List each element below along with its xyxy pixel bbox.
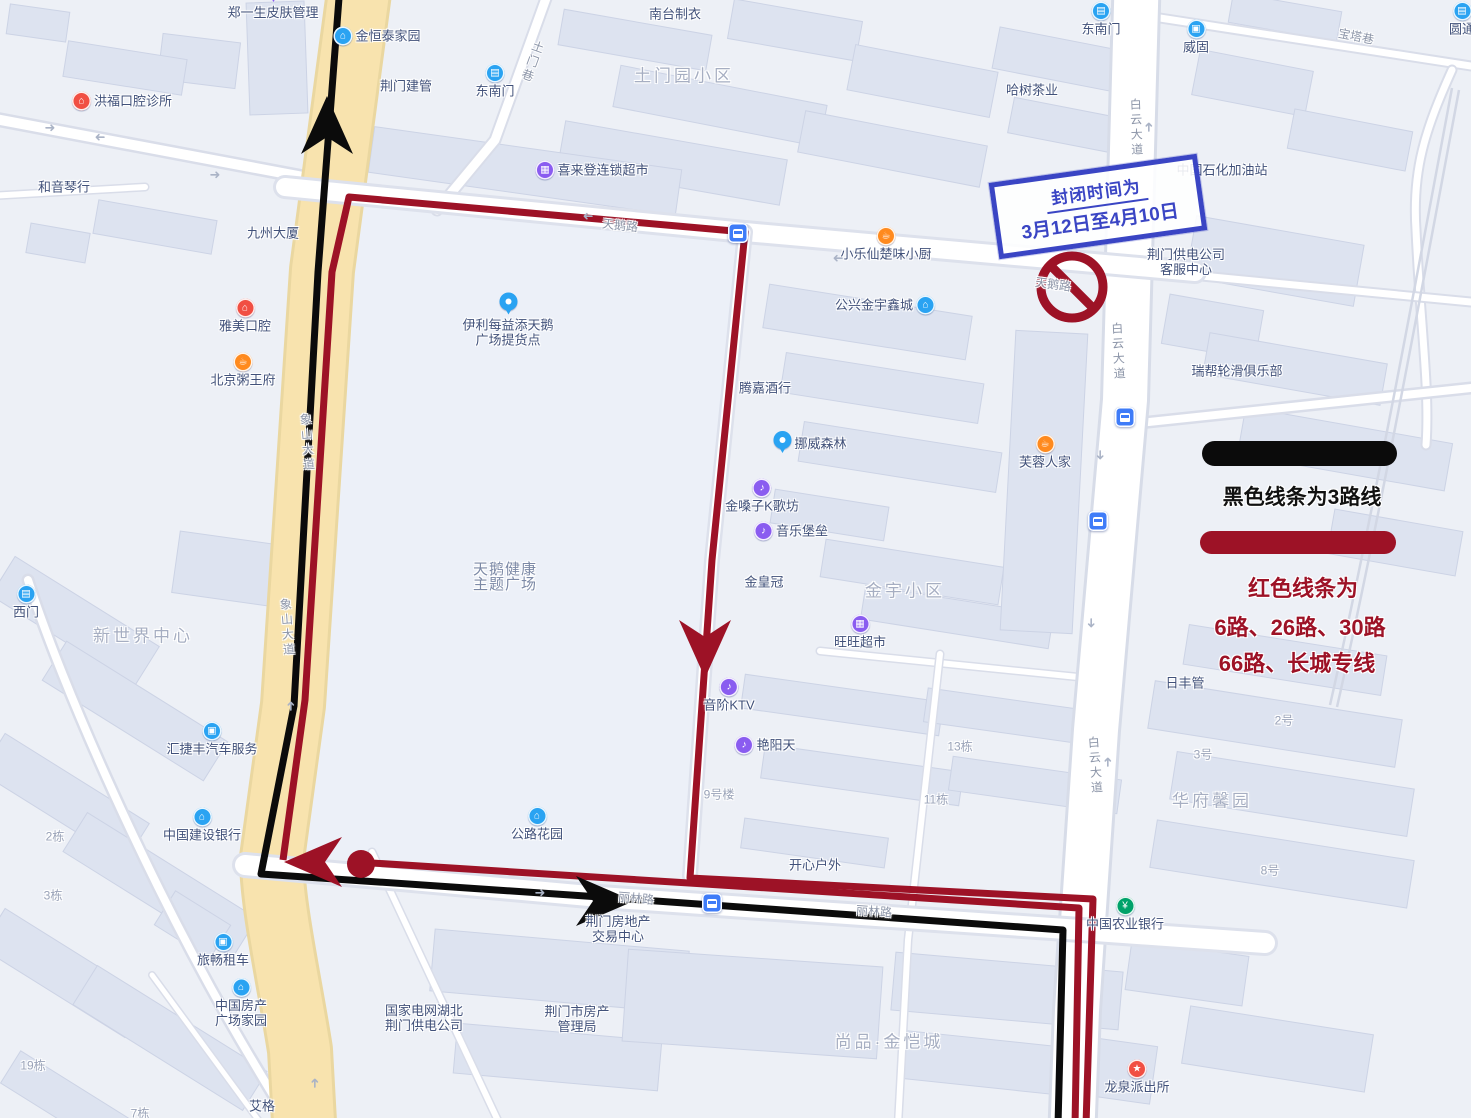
bus-stop-icon[interactable] [702,893,722,913]
map-poi[interactable]: ▣旅畅租车 [197,933,249,968]
map-poi: 华府馨园 [1172,794,1252,809]
food-icon[interactable]: ☕ [1035,435,1054,454]
traffic-direction-arrow-icon: ➜ [307,1078,323,1089]
traffic-direction-arrow-icon: ➜ [1092,450,1108,461]
road-label: 象山大道 [278,598,296,659]
poi-label[interactable]: 腾嘉酒行 [739,381,791,396]
map-poi[interactable]: ⌂中国建设银行 [163,808,241,843]
poi-label[interactable]: 金皇冠 [744,575,783,590]
map-poi[interactable]: ⌂公路花园 [511,807,563,842]
map-poi[interactable]: 国家电网湖北荆门供电公司 [385,1003,463,1033]
map-poi: 13栋 [947,740,972,755]
map-poi[interactable]: 郑一生皮肤管理 [227,0,318,20]
poi-label[interactable]: 中国建设银行 [163,828,241,843]
cart-icon[interactable]: ▦ [850,615,869,634]
express-icon[interactable]: ▤ [1452,2,1471,21]
map-poi[interactable]: ▣汇捷丰汽车服务 [166,722,257,757]
poi-label[interactable]: 瑞帮轮滑俱乐部 [1191,364,1282,379]
map-poi[interactable]: 腾嘉酒行 [739,381,791,396]
map-poi: 宝塔巷 [1337,26,1375,48]
poi-label[interactable]: 公兴金宇鑫城 [835,298,913,313]
poi-label[interactable]: 洪福口腔诊所 [94,94,172,109]
area-label: 土门园小区 [634,69,734,84]
poi-label[interactable]: 伊利每益添天鹅广场提货点 [462,318,553,348]
poi-label[interactable]: 金恒泰家园 [355,29,420,44]
legend-black-line-swatch [1202,441,1397,466]
poi-label[interactable]: 汇捷丰汽车服务 [166,742,257,757]
car-icon[interactable]: ▣ [213,933,232,952]
poi-label[interactable]: 圆通 [1449,22,1471,37]
map-poi[interactable]: ♪音乐堡垒 [754,522,828,541]
poi-label[interactable]: 荆门建管 [380,79,432,94]
map-poi[interactable]: ⌂雅美口腔 [219,299,271,334]
map-poi[interactable]: 哈树茶业 [1006,83,1058,98]
map-poi[interactable]: 艾格 [249,1099,275,1114]
map-poi[interactable]: 荆门供电公司客服中心 [1147,247,1225,277]
poi-label[interactable]: 中国农业银行 [1086,917,1164,932]
road-label: 宝塔巷 [1337,26,1375,48]
poi-label[interactable]: 芙蓉人家 [1019,455,1071,470]
map-poi[interactable]: 日丰管 [1165,676,1204,691]
map-poi[interactable]: ♪艳阳天 [734,736,795,755]
map-poi: 2栋 [46,830,65,845]
map-poi[interactable]: 瑞帮轮滑俱乐部 [1191,364,1282,379]
agri-icon[interactable]: ¥ [1115,897,1134,916]
map-poi[interactable]: ♪音阶KTV [703,678,754,713]
map-screenshot: 郑一生皮肤管理⌂金恒泰家园荆门建管▤东南门⌂洪福口腔诊所和音琴行九州大厦⌂雅美口… [0,0,1471,1118]
map-poi: 土门巷 [518,38,547,85]
traffic-direction-arrow-icon: ➜ [833,250,844,266]
map-poi[interactable]: 南台制衣 [649,7,701,22]
traffic-direction-arrow-icon: ➜ [1083,618,1099,629]
area-label: 金宇小区 [865,584,945,599]
bank-icon[interactable]: ⌂ [916,296,935,315]
poi-label[interactable]: 郑一生皮肤管理 [227,5,318,20]
poi-label[interactable]: 旺旺超市 [834,635,886,650]
cart-icon[interactable]: ▦ [535,161,554,180]
traffic-direction-arrow-icon: ➜ [535,885,546,901]
bank-icon[interactable]: ⌂ [333,27,352,46]
gate-icon[interactable]: ▤ [1091,2,1110,21]
area-label: 华府馨园 [1172,794,1252,809]
map-poi[interactable]: 金皇冠 [744,575,783,590]
poi-label[interactable]: 喜来登连锁超市 [557,163,648,178]
poi-label[interactable]: 东南门 [475,84,514,99]
bus-stop-icon[interactable] [728,223,748,243]
traffic-direction-arrow-icon: ➜ [583,208,594,224]
map-poi: 金宇小区 [865,584,945,599]
map-poi[interactable]: ⌂金恒泰家园 [333,27,420,46]
map-poi: 丽林路 [856,903,893,920]
map-poi: 11栋 [924,793,948,808]
map-poi: 新世界中心 [93,629,193,644]
poi-label[interactable]: 龙泉派出所 [1104,1080,1169,1095]
gate-icon[interactable]: ▤ [485,64,504,83]
road-label: 象山大道 [298,413,316,474]
map-poi: 9号楼 [704,788,735,803]
poi-label[interactable]: 荆门房地产交易中心 [585,914,650,944]
pin-icon[interactable] [264,0,282,4]
map-poi[interactable]: 挪威森林 [773,431,846,455]
road-label: 丽林路 [856,903,893,920]
map-poi: 3号 [1194,748,1213,763]
map-poi[interactable]: 和音琴行 [38,180,90,195]
poi-label[interactable]: 东南门 [1081,22,1120,37]
map-poi: 3栋 [44,889,63,904]
map-poi: 天鹅健康主题广场 [473,562,537,592]
road-label: 丽林路 [617,890,654,908]
legend-red-line-label-3: 66路、长城专线 [1219,646,1375,678]
poi-label[interactable]: 九州大厦 [247,226,299,241]
area-label: 2号 [1275,714,1294,729]
bus-stop-icon[interactable] [1115,407,1135,427]
food-icon[interactable]: ☕ [876,227,895,246]
poi-label[interactable]: 荆门市房产管理局 [544,1004,609,1034]
map-poi[interactable]: 荆门建管 [380,79,432,94]
poi-label[interactable]: 日丰管 [1165,676,1204,691]
mic-icon[interactable]: ♪ [752,479,771,498]
legend-black-line-label: 黑色线条为3路线 [1223,481,1382,511]
bank-icon[interactable]: ⌂ [231,978,250,997]
map-poi: 2号 [1275,714,1294,729]
map-poi[interactable]: ▦喜来登连锁超市 [535,161,648,180]
area-label: 天鹅健康主题广场 [473,562,537,592]
poi-label[interactable]: 北京粥王府 [210,373,275,388]
traffic-direction-arrow-icon: ➜ [1141,122,1157,133]
area-label: 19栋 [20,1059,45,1074]
map-poi: 白云大道 [1109,322,1126,383]
poi-label[interactable]: 和音琴行 [38,180,90,195]
poi-label[interactable]: 开心户外 [789,858,841,873]
map-poi[interactable]: ⌂洪福口腔诊所 [72,92,172,111]
map-poi: 象山大道 [298,413,316,474]
poi-label[interactable]: 雅美口腔 [219,319,271,334]
home-icon[interactable]: ⌂ [72,92,91,111]
traffic-direction-arrow-icon: ➜ [1100,757,1116,768]
traffic-direction-arrow-icon: ➜ [210,167,221,183]
map-poi: 丽林路 [617,890,654,908]
map-poi[interactable]: ▤圆通 [1449,2,1471,37]
map-poi[interactable]: ▤西门 [13,585,39,620]
map-poi[interactable]: ☕北京粥王府 [210,353,275,388]
poi-label[interactable]: 中国房产广场家园 [215,998,267,1028]
police-icon[interactable]: ★ [1127,1060,1146,1079]
area-label: 9号楼 [704,788,735,803]
poi-label[interactable]: 哈树茶业 [1006,83,1058,98]
map-poi[interactable]: ▣威固 [1183,20,1209,55]
gate-icon[interactable]: ▤ [16,585,35,604]
legend-red-line-label-2: 6路、26路、30路 [1214,610,1385,642]
road-label: 天鹅路 [601,217,638,236]
map-poi: 19栋 [20,1059,45,1074]
poi-label[interactable]: 小乐仙楚味小厨 [840,247,931,262]
map-poi: 尚品·金恺城 [835,1035,944,1050]
map-poi[interactable]: 伊利每益添天鹅广场提货点 [462,293,553,348]
map-poi: 8号 [1261,864,1280,879]
area-label: 尚品·金恺城 [835,1035,944,1050]
poi-label[interactable]: 挪威森林 [794,436,846,451]
poi-label[interactable]: 艾格 [249,1099,275,1114]
poi-label[interactable]: 威固 [1183,40,1209,55]
map-poi: 象山大道 [278,598,296,659]
road-label: 白云大道 [1109,322,1126,383]
poi-label[interactable]: 艳阳天 [756,738,795,753]
map-poi: 土门园小区 [634,69,734,84]
map-poi[interactable]: ☕芙蓉人家 [1019,435,1071,470]
poi-label[interactable]: 荆门供电公司客服中心 [1147,247,1225,277]
mic-icon[interactable]: ♪ [734,736,753,755]
food-icon[interactable]: ☕ [233,353,252,372]
map-poi[interactable]: ⌂中国房产广场家园 [215,978,267,1028]
area-label: 2栋 [46,830,65,845]
area-label: 11栋 [924,793,948,808]
poi-label[interactable]: 南台制衣 [649,7,701,22]
map-poi[interactable]: ♪金嗓子K歌坊 [725,479,799,514]
poi-label[interactable]: 金嗓子K歌坊 [725,499,799,514]
map-poi[interactable]: 荆门房地产交易中心 [585,914,650,944]
traffic-direction-arrow-icon: ➜ [45,120,56,136]
home-icon[interactable]: ⌂ [235,299,254,318]
pin-icon[interactable] [499,293,517,317]
poi-label[interactable]: 音阶KTV [703,698,754,713]
poi-label[interactable]: 旅畅租车 [197,953,249,968]
poi-label[interactable]: 西门 [13,605,39,620]
mic-icon[interactable]: ♪ [754,522,773,541]
poi-label[interactable]: 公路花园 [511,827,563,842]
area-label: 3号 [1194,748,1213,763]
map-poi: 天鹅路 [1034,275,1072,295]
map-poi[interactable]: ★龙泉派出所 [1104,1060,1169,1095]
area-label: 7栋 [131,1107,150,1118]
map-poi[interactable]: 九州大厦 [247,226,299,241]
legend-red-line-label-1: 红色线条为 [1248,571,1358,603]
car-icon[interactable]: ▣ [202,722,221,741]
map-poi: 天鹅路 [601,217,638,236]
road-label: 天鹅路 [1034,275,1072,295]
legend-red-line-swatch [1200,531,1396,554]
bus-stop-icon[interactable] [1088,511,1108,531]
map-poi[interactable]: ▤东南门 [475,64,514,99]
bank-icon[interactable]: ⌂ [527,807,546,826]
map-poi[interactable]: ▤东南门 [1081,2,1120,37]
map-poi[interactable]: 开心户外 [789,858,841,873]
car-icon[interactable]: ▣ [1186,20,1205,39]
traffic-direction-arrow-icon: ➜ [95,129,106,145]
map-poi[interactable]: 公兴金宇鑫城⌂ [835,296,935,315]
map-poi: 7栋 [131,1107,150,1118]
road-label: 土门巷 [518,38,547,85]
map-poi[interactable]: ¥中国农业银行 [1086,897,1164,932]
mic-icon[interactable]: ♪ [719,678,738,697]
traffic-direction-arrow-icon: ➜ [283,701,299,712]
map-poi[interactable]: ☕小乐仙楚味小厨 [840,227,931,262]
poi-label[interactable]: 音乐堡垒 [776,524,828,539]
area-label: 13栋 [947,740,972,755]
map-poi[interactable]: 荆门市房产管理局 [544,1004,609,1034]
pin-icon[interactable] [773,431,791,455]
area-label: 8号 [1261,864,1280,879]
area-label: 新世界中心 [93,629,193,644]
area-label: 3栋 [44,889,63,904]
map-poi[interactable]: ▦旺旺超市 [834,615,886,650]
poi-layer: 郑一生皮肤管理⌂金恒泰家园荆门建管▤东南门⌂洪福口腔诊所和音琴行九州大厦⌂雅美口… [0,0,1471,1118]
poi-label[interactable]: 国家电网湖北荆门供电公司 [385,1003,463,1033]
bank-icon[interactable]: ⌂ [192,808,211,827]
